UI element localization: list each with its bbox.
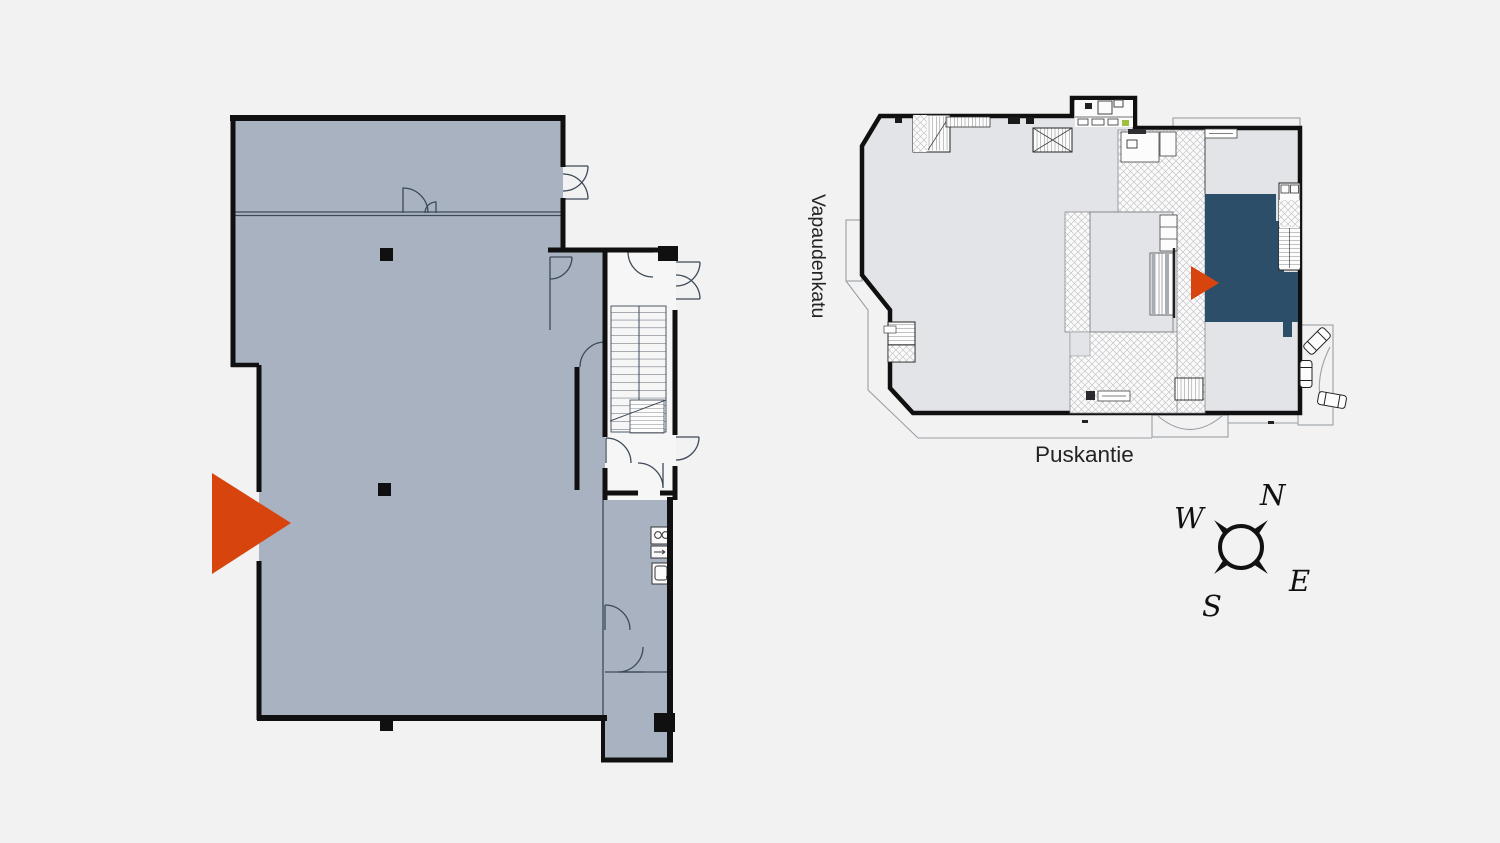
compass-south-label: S: [1202, 589, 1222, 623]
compass-north-label: N: [1259, 478, 1287, 512]
compass-circle: [1220, 526, 1262, 568]
green-marker: [1122, 120, 1129, 126]
stair-block-right: [1279, 183, 1300, 270]
floorplan-body: [233, 118, 605, 718]
stair-block-topcenter: [1033, 128, 1072, 152]
stair-block-topleft: [913, 115, 950, 152]
car-icon: [1317, 391, 1347, 409]
staircase: [610, 306, 666, 433]
compass-east-label: E: [1288, 564, 1310, 598]
escalator: [1150, 248, 1174, 318]
right-siteplan: Vapaudenkatu Puskantie: [807, 98, 1347, 467]
rooftop-room: [1075, 100, 1133, 127]
car-icon: [1303, 327, 1332, 356]
corridor-notch: [1070, 332, 1090, 356]
compass-rose: N W E S: [1174, 478, 1310, 623]
street-label-vapaudenkatu: Vapaudenkatu: [807, 194, 829, 318]
left-floorplan: [212, 115, 700, 762]
stair-block-left: [884, 322, 915, 362]
car-icon: [1300, 361, 1312, 388]
floorplan-canvas: Vapaudenkatu Puskantie N W E S: [0, 0, 1500, 843]
compass-west-label: W: [1174, 501, 1206, 535]
stair-block-bottom: [1175, 378, 1203, 400]
street-label-puskantie: Puskantie: [1035, 442, 1134, 467]
parked-cars: [1300, 327, 1347, 409]
